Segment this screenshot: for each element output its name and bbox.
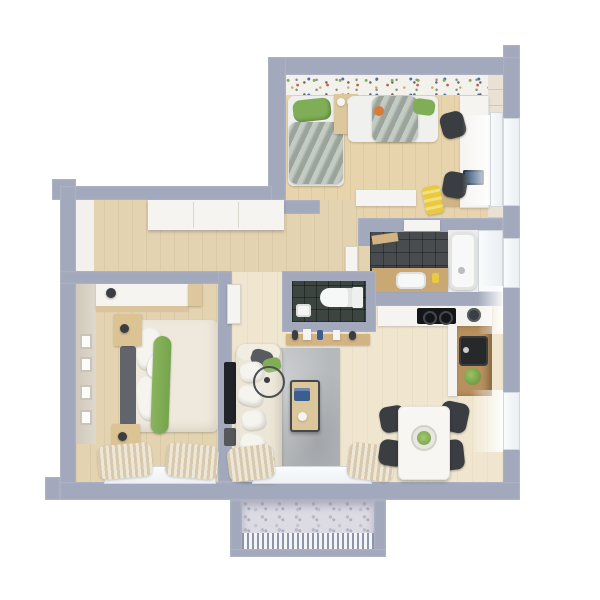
bathroom-door-gap [358, 246, 370, 272]
books [294, 388, 310, 401]
wall-art [80, 357, 92, 372]
bathroom-sink [396, 272, 426, 289]
hallway-bottom-wall [60, 271, 230, 284]
bathroom-cup [432, 273, 439, 283]
kids-dresser [356, 190, 416, 206]
bedroom-curtain [165, 442, 220, 480]
terrazzo-accent-wall [285, 75, 503, 95]
headboard [120, 346, 136, 426]
balcony-bottom-edge [230, 549, 386, 557]
kids-lamp [337, 98, 345, 106]
shower-head [458, 267, 465, 274]
closet-door-seam [193, 202, 194, 228]
kids-pillow-green [292, 97, 332, 123]
shelf-item [292, 330, 298, 340]
nightstand-lamp [120, 324, 129, 333]
kitchen-counter-edge [448, 326, 457, 396]
wall-art [80, 334, 92, 349]
bathroom-window-light [478, 230, 503, 292]
bottom-wall [60, 482, 520, 500]
burner [439, 311, 453, 325]
bedroom-door-leaf [227, 284, 241, 324]
toilet-tank [352, 287, 363, 308]
shelf-item [349, 331, 356, 340]
balcony-right-wall [374, 500, 386, 555]
kids-window [490, 112, 503, 207]
top-wall-kids [268, 57, 520, 75]
floorplan-canvas [0, 0, 600, 600]
wall-art [80, 385, 92, 400]
green-runner [150, 336, 171, 435]
toy-ball [374, 106, 384, 116]
bathroom-window-outer [503, 238, 520, 288]
nightstand-lamp [118, 432, 127, 441]
wc-hand-basin [296, 304, 311, 317]
bottom-left-step [45, 477, 60, 500]
shelf-item [317, 330, 323, 340]
wardrobe-side [188, 284, 202, 306]
bathtub [449, 232, 477, 290]
mug [298, 412, 307, 421]
left-wall [60, 186, 76, 500]
kids-left-wall [268, 57, 286, 200]
tv [224, 362, 236, 424]
hallway-closet [148, 200, 284, 230]
living-curtain [226, 443, 276, 482]
burner [423, 311, 437, 325]
wardrobe-lamp [106, 288, 116, 298]
centerpiece-plant [417, 431, 431, 445]
wall-art [80, 410, 92, 425]
console-shelf [286, 334, 370, 345]
washer [404, 220, 440, 231]
balcony-railing [242, 533, 374, 549]
plant [464, 368, 481, 385]
toilet [320, 288, 354, 307]
dining-window-outer [503, 392, 520, 450]
bedroom-curtain [97, 442, 154, 481]
balcony-left-wall [230, 500, 242, 555]
closet-door-seam [238, 202, 239, 228]
fan-hub [264, 377, 270, 383]
hallway-top-wall [60, 186, 272, 200]
hallway-left-wall-face [76, 200, 94, 272]
pot [467, 308, 481, 322]
kids-window-outer [503, 118, 520, 206]
shelf-item [333, 330, 340, 340]
tv-shelf [224, 428, 236, 446]
shelf-item [303, 329, 311, 340]
faucet [463, 347, 469, 353]
kids-duvet [372, 96, 418, 142]
wardrobe-wood-strip [96, 306, 188, 312]
kids-pillow-green [412, 98, 436, 117]
